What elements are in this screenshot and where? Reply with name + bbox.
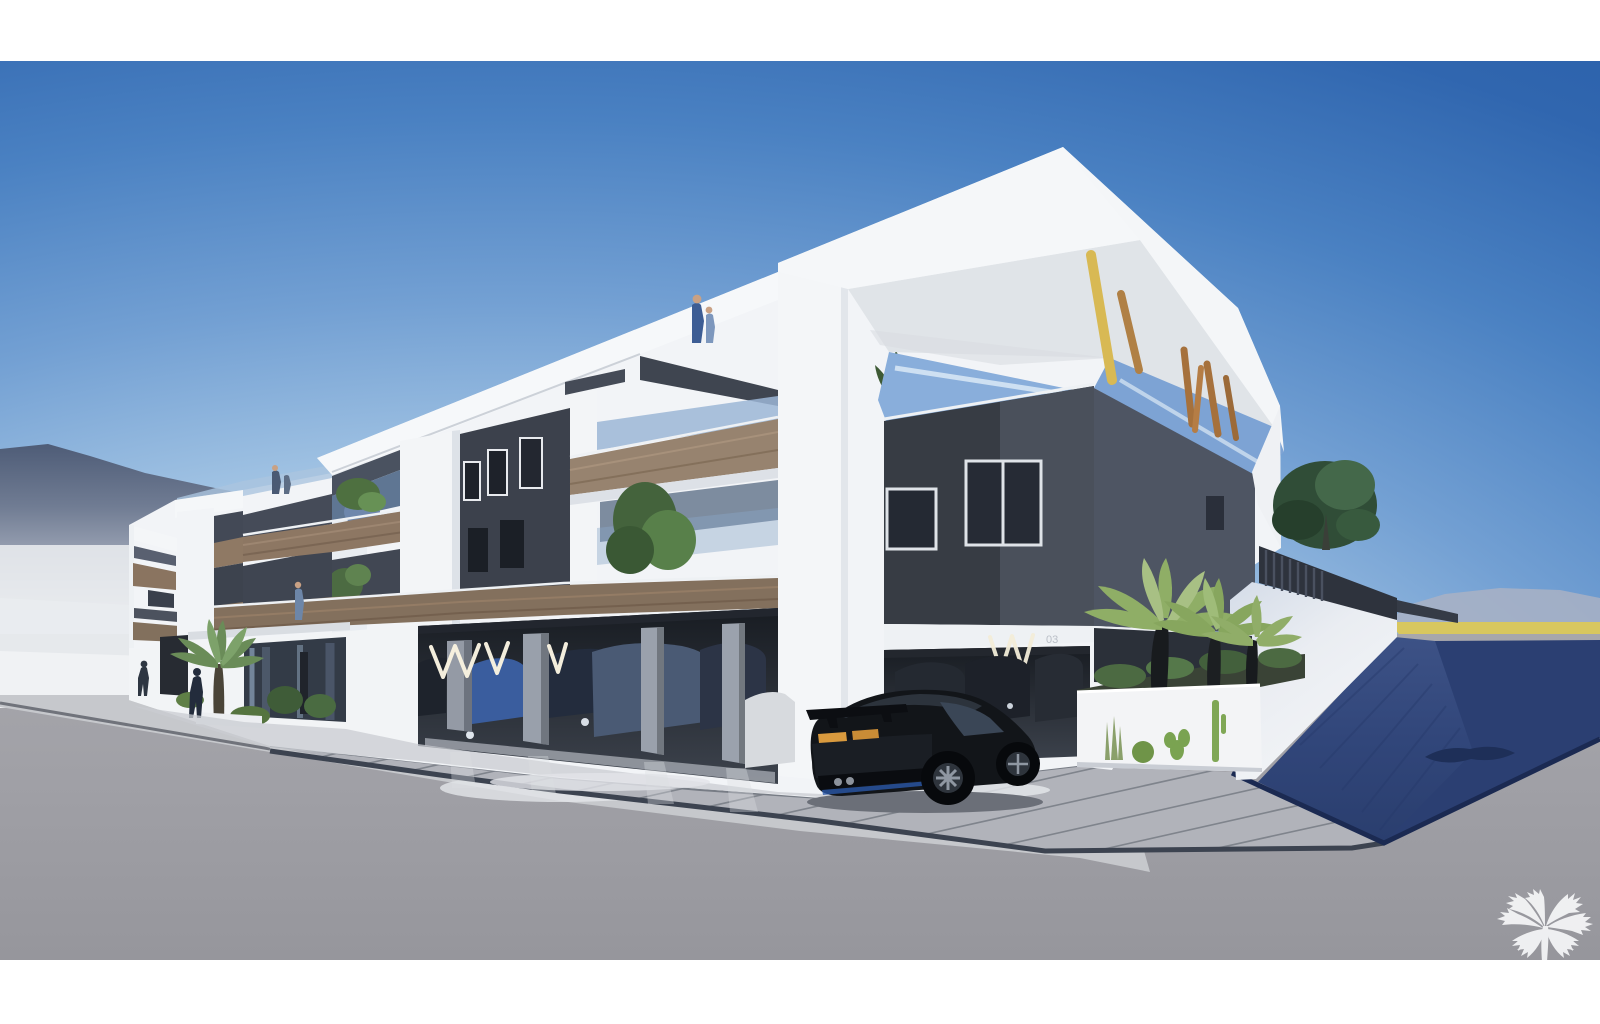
svg-text:03: 03	[1046, 634, 1058, 646]
